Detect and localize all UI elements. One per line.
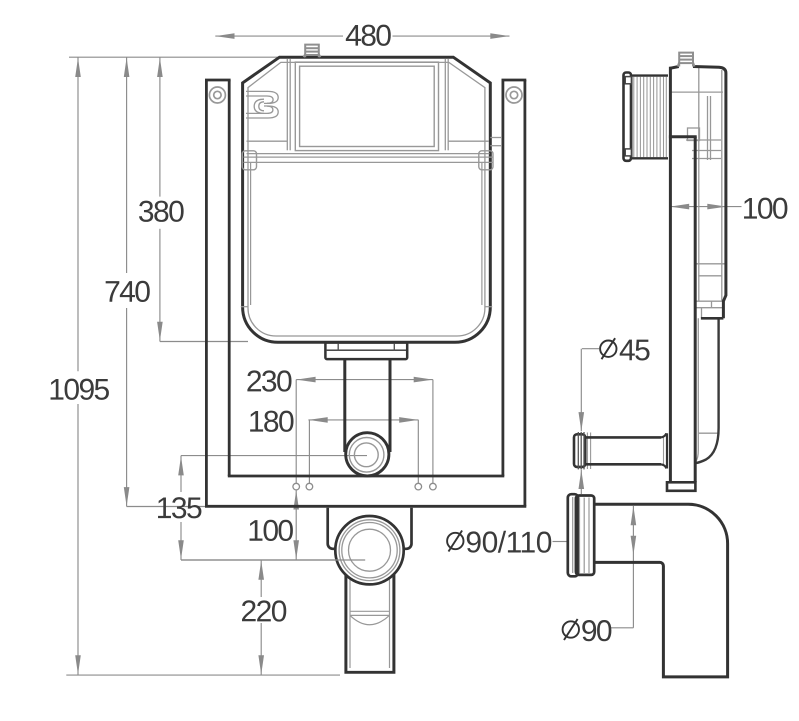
svg-text:100: 100 bbox=[742, 193, 788, 226]
svg-text:90: 90 bbox=[581, 615, 612, 648]
svg-text:230: 230 bbox=[246, 365, 292, 398]
svg-text:740: 740 bbox=[104, 276, 150, 309]
svg-text:380: 380 bbox=[138, 196, 184, 229]
svg-text:90/110: 90/110 bbox=[465, 526, 552, 559]
svg-text:1095: 1095 bbox=[48, 374, 109, 407]
svg-text:180: 180 bbox=[248, 406, 294, 439]
svg-text:480: 480 bbox=[345, 20, 391, 53]
svg-text:100: 100 bbox=[247, 515, 293, 548]
svg-text:135: 135 bbox=[156, 492, 202, 525]
svg-text:220: 220 bbox=[241, 595, 287, 628]
svg-text:45: 45 bbox=[619, 334, 650, 367]
